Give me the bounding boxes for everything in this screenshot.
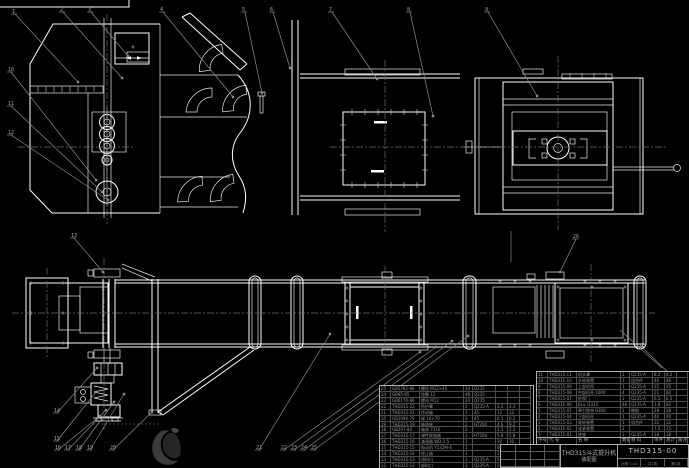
scale-cell: 比例 1:10 <box>618 459 641 468</box>
middle-casing <box>300 74 460 200</box>
tail-housing <box>463 69 681 214</box>
watermark-blob <box>152 428 180 465</box>
frame-corner <box>0 0 129 7</box>
balloon-number: 18 <box>76 445 82 451</box>
balloon-number: 11 <box>8 101 14 107</box>
bom-cell: 卸料口 <box>420 463 464 468</box>
inspection-window <box>115 33 149 64</box>
signature-grid <box>501 445 561 467</box>
bom-cell: 12 <box>380 463 391 468</box>
bom-cell: Q235-A <box>473 463 496 468</box>
balloon-number: 25 <box>311 445 317 451</box>
drawing-number: THD315-00 <box>618 445 688 459</box>
balloon-number: 22 <box>281 445 287 451</box>
bom-cell: 1 <box>464 463 473 468</box>
casing-flange <box>292 20 298 215</box>
balloon-number: 19 <box>87 445 93 451</box>
rod-handle <box>674 165 681 172</box>
balloon-number: 3 <box>88 7 91 13</box>
balloon-number: 7 <box>329 7 332 13</box>
sheet-no-cell: 第1张 <box>665 459 688 468</box>
balloon-number: 8 <box>407 7 410 13</box>
plan-head-box <box>26 269 120 358</box>
doc-type: 装配图 <box>581 457 596 463</box>
balloon-number: 1 <box>12 9 15 15</box>
plan-tail-section <box>493 272 628 358</box>
elevation-view <box>18 13 681 232</box>
balloon-number: 26 <box>573 234 579 240</box>
ladder-ticks <box>38 86 94 92</box>
sheets-cell: 共1张 <box>641 459 664 468</box>
drawing-title-cell: THD315斗式提升机 装配图 <box>561 445 618 467</box>
balloon-number: 23 <box>291 445 297 451</box>
bom-table-main-parts: 11THD315-11机头罩1Q235-A8.28.210THD315-10头轮… <box>536 371 689 439</box>
balloon-number: 13 <box>71 233 77 239</box>
drive-assembly <box>75 348 160 424</box>
balloon-number: 12 <box>8 130 14 136</box>
balloon-number: 9 <box>485 7 488 13</box>
balloon-number: 6 <box>270 7 273 13</box>
balloon-number: 15 <box>54 436 60 442</box>
bucket-bolt <box>258 92 265 113</box>
balloon-number: 14 <box>54 408 60 414</box>
title-block: THD315斗式提升机 装配图 THD315-00 比例 1:10 共1张 第1… <box>500 444 689 468</box>
access-door-elevation <box>340 69 428 215</box>
balloon-number: 4 <box>160 7 163 13</box>
chute-and-brace <box>122 264 254 415</box>
cad-drawing-canvas[interactable]: 1234567891011121314151617181920212223242… <box>0 0 689 468</box>
product-name: THD315斗式提升机 <box>562 450 616 457</box>
balloon-number: 16 <box>55 445 61 451</box>
balloon-number: 10 <box>8 67 14 73</box>
bucket-section <box>160 13 265 213</box>
take-up-assembly <box>92 108 126 206</box>
bom-cell: THD315-12 <box>391 463 420 468</box>
balloon-number: 20 <box>110 445 116 451</box>
plan-casing <box>115 280 645 347</box>
balloon-number: 24 <box>301 445 307 451</box>
balloon-number: 2 <box>60 7 63 13</box>
drawing-number-cell: THD315-00 比例 1:10 共1张 第1张 <box>618 445 688 467</box>
balloon-number: 5 <box>242 7 245 13</box>
balloon-number: 17 <box>65 445 71 451</box>
balloon-number: 21 <box>256 445 262 451</box>
